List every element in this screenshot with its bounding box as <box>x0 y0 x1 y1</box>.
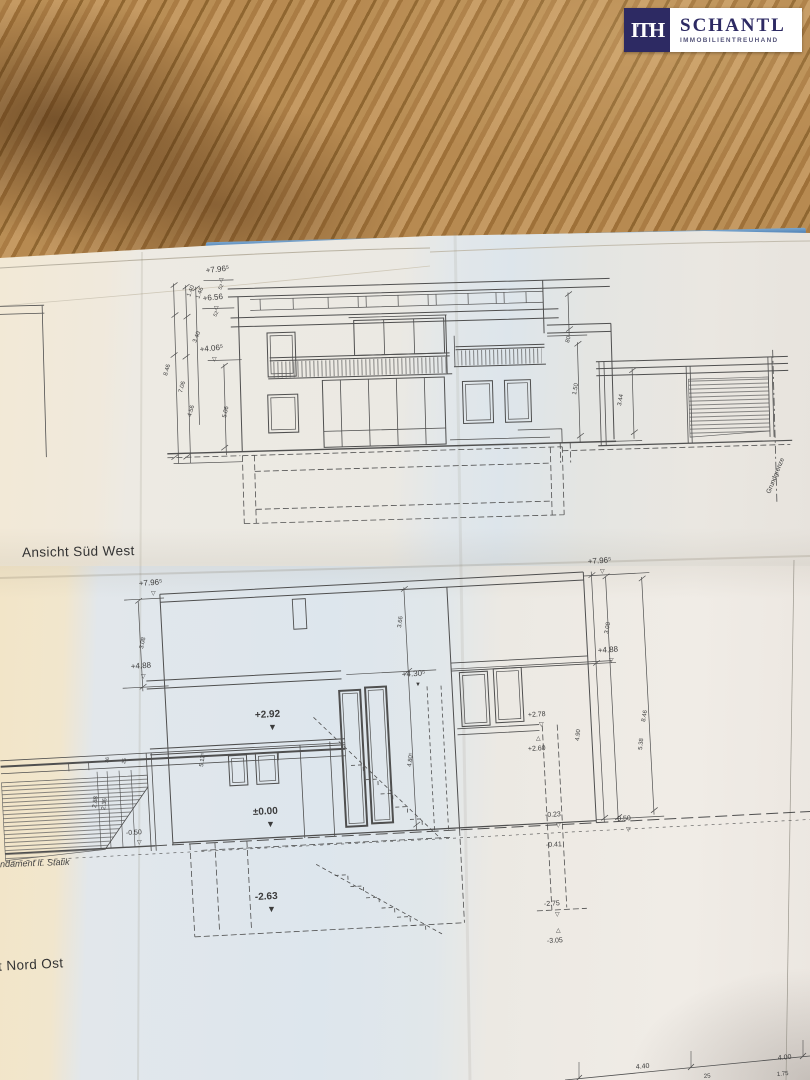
dimension-label: 7.06 <box>178 380 187 394</box>
dimension-label: ▽ <box>556 823 561 829</box>
dimension-label: +6.56 <box>202 292 224 303</box>
dimension-label: 5.38 <box>638 737 645 750</box>
dimension-label: +4.88 <box>131 661 152 671</box>
dimension-label: -2.75 <box>544 900 560 908</box>
dimension-label: -0.50 <box>126 829 142 837</box>
bottom-dimension-line <box>565 1040 810 1080</box>
dimension-label: +2.92 <box>255 709 281 721</box>
dimension-label: 25 <box>121 758 128 765</box>
dimension-label: 4.56 <box>187 404 196 418</box>
dimension-label: -0.41 <box>546 841 562 849</box>
agency-logo: ITH SCHANTL IMMOBILIENTREUHAND <box>624 8 802 52</box>
dimension-label: ±0.00 <box>253 806 279 818</box>
dimension-label: 8.46 <box>641 709 649 722</box>
dimension-label: ▽ <box>212 357 217 363</box>
dimension-label: -0.23 <box>545 811 561 819</box>
dimension-label: 3.40 <box>192 330 202 344</box>
dimension-label: 52 <box>217 283 225 291</box>
upper-elevation-title: Ansicht Süd West <box>22 543 135 560</box>
dimension-label: △ <box>556 928 561 934</box>
logo-company-subtitle: IMMOBILIENTREUHAND <box>680 37 794 44</box>
dimension-label: ▼ <box>268 722 277 732</box>
dimension-label: △ <box>536 736 541 742</box>
dimension-label: -3.05 <box>547 937 563 945</box>
dimension-label: 80 <box>565 335 573 344</box>
dimension-label: 3.66 <box>397 615 405 628</box>
dimension-label: ▽ <box>141 674 146 680</box>
dimension-label: +4.06⁵ <box>199 343 223 354</box>
dimension-label: 36 <box>104 757 111 764</box>
dimension-label: ▽ <box>600 569 605 575</box>
dimension-label: ▽ <box>539 722 544 728</box>
dimension-label: 1.40 <box>186 284 196 298</box>
logo-ith-monogram: ITH <box>624 8 670 52</box>
dimension-label: ▽ <box>626 827 631 833</box>
upper-elevation-linework <box>0 264 794 530</box>
dimension-label: +7.96⁵ <box>205 264 229 275</box>
dimension-label: 4.40 <box>636 1063 650 1071</box>
dimension-label: +2.60 <box>528 745 546 753</box>
dimension-label: 8.46 <box>163 363 172 377</box>
dimension-label: +2.78 <box>528 711 546 719</box>
dimension-label: 3.08 <box>604 621 612 634</box>
logo-monogram-text: ITH <box>631 18 664 43</box>
photo-of-floorplan: +7.96⁵▽52+6.56▽52+4.06⁵▽1.401.463.408.46… <box>0 0 810 1080</box>
dimension-label: ▼ <box>267 904 276 914</box>
dimension-label: +7.96⁵ <box>139 577 163 588</box>
dimension-label: 4.00 <box>778 1054 792 1062</box>
dimension-label: +7.96⁵ <box>588 555 612 566</box>
dimension-label: ▽ <box>555 912 560 918</box>
logo-company-name: SCHANTL <box>680 16 794 36</box>
dimension-label: 4.90 <box>575 728 582 741</box>
dimension-label: +4.88 <box>598 645 619 655</box>
dimension-label: ▽ <box>137 840 142 846</box>
dimension-label: ▽ <box>151 591 156 597</box>
dimension-label: 3.08 <box>139 636 147 649</box>
dimension-label: -0.50 <box>615 815 631 823</box>
dimension-label: 52 <box>212 310 220 318</box>
dimension-label: +4.30⁵ <box>402 668 426 679</box>
dimension-label: 3.44 <box>617 393 625 406</box>
dimension-label: -2.63 <box>255 891 279 903</box>
dimension-label: 4.80⁵ <box>406 752 415 768</box>
dimension-label: ▽ <box>609 658 614 664</box>
dimension-label: 5.12⁵ <box>198 752 207 768</box>
elevation-drawing-layer: +7.96⁵▽52+6.56▽52+4.06⁵▽1.401.463.408.46… <box>0 0 810 1080</box>
dimension-label: ▼ <box>415 682 421 688</box>
dimension-label: 5.06 <box>222 405 230 418</box>
dimension-label: 25 <box>704 1073 712 1080</box>
dimension-label: 1.75 <box>777 1071 790 1078</box>
dimension-label: ▼ <box>266 819 275 829</box>
logo-wordmark: SCHANTL IMMOBILIENTREUHAND <box>670 8 802 52</box>
